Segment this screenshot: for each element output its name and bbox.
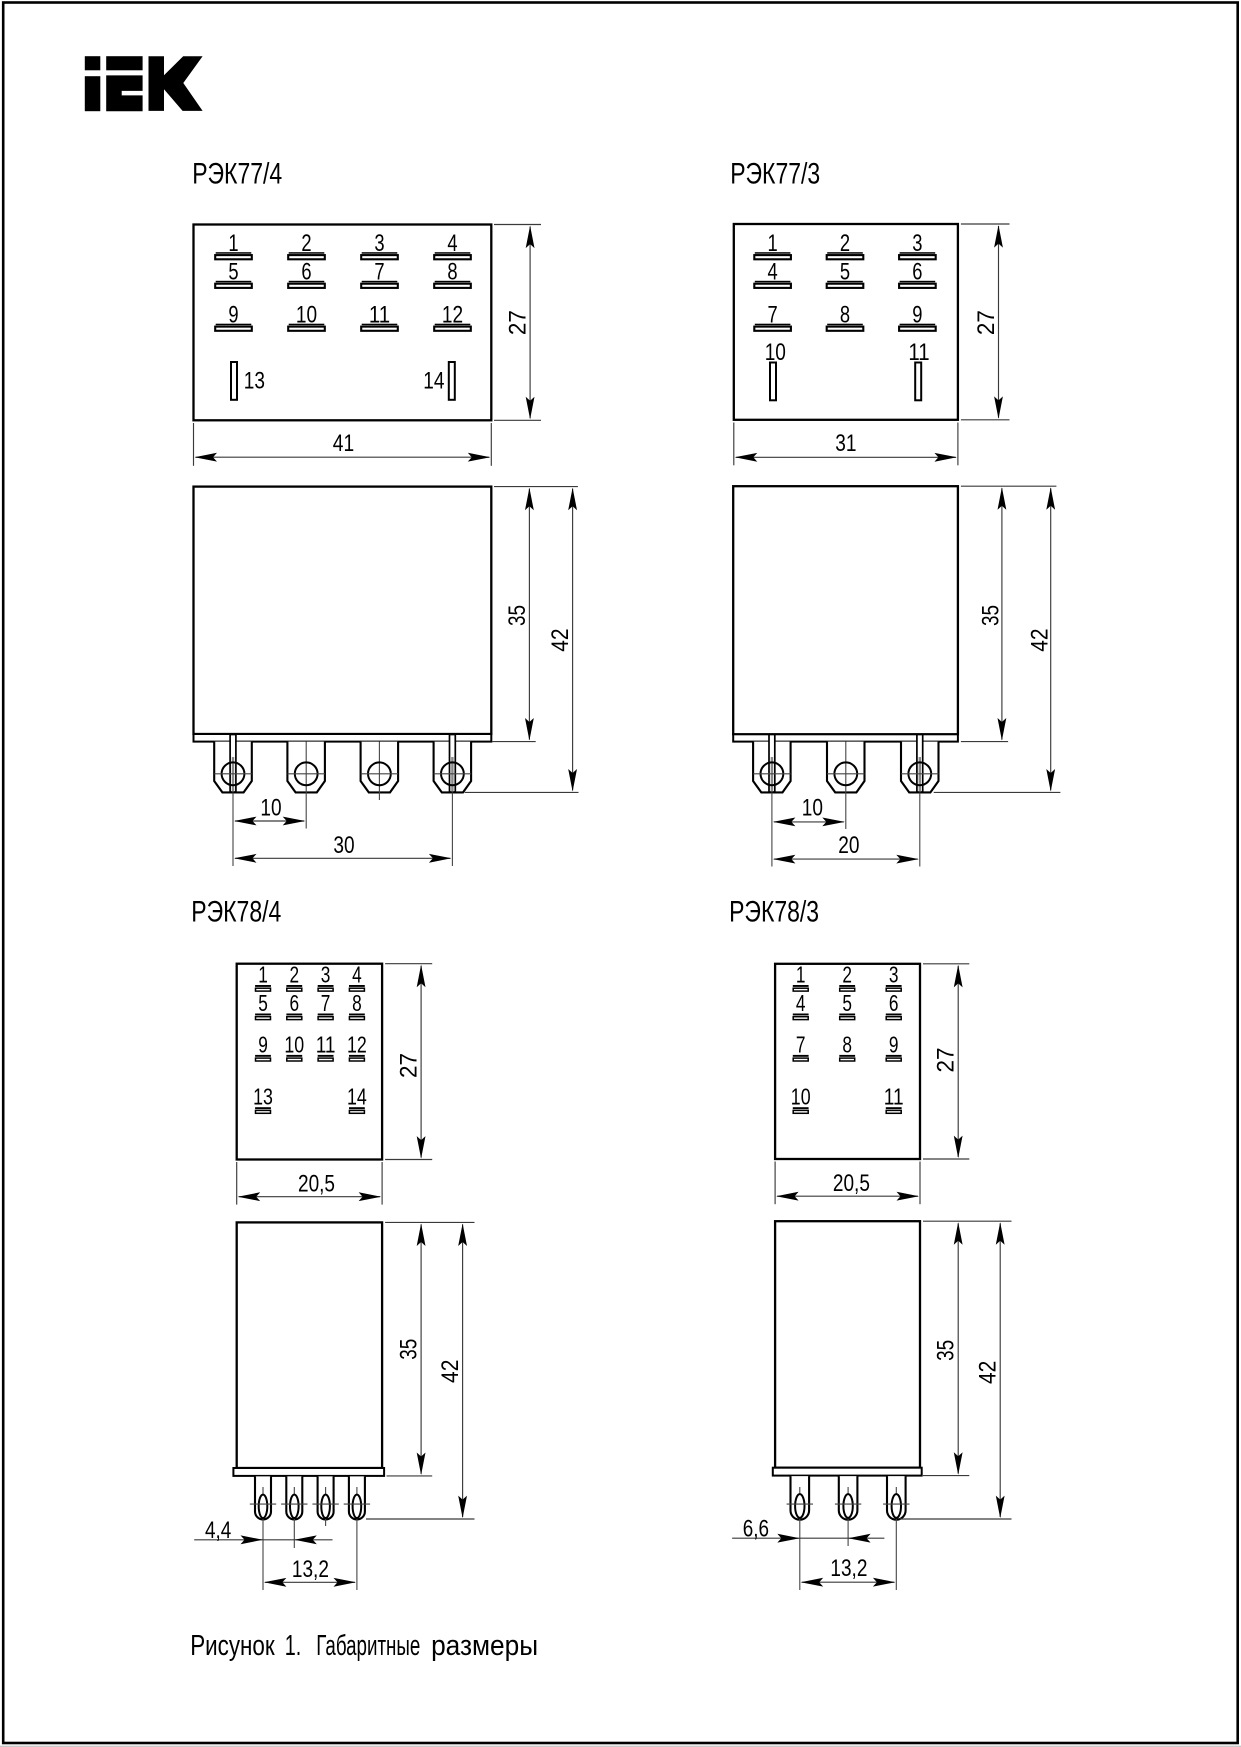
- svg-text:1: 1: [258, 961, 268, 987]
- svg-text:27: 27: [973, 310, 1000, 335]
- svg-text:3: 3: [321, 961, 331, 987]
- svg-text:41: 41: [333, 430, 354, 457]
- svg-text:2: 2: [290, 961, 300, 987]
- svg-text:12: 12: [347, 1031, 367, 1057]
- svg-text:13,2: 13,2: [292, 1556, 329, 1583]
- svg-text:5: 5: [842, 990, 852, 1016]
- svg-text:1: 1: [796, 961, 806, 987]
- svg-text:13,2: 13,2: [830, 1555, 867, 1582]
- svg-text:5: 5: [258, 990, 268, 1016]
- svg-text:27: 27: [933, 1048, 960, 1073]
- svg-text:9: 9: [889, 1031, 899, 1057]
- svg-text:20: 20: [838, 832, 859, 859]
- svg-text:31: 31: [835, 430, 856, 457]
- svg-text:35: 35: [933, 1340, 960, 1361]
- svg-text:размеры: размеры: [431, 1630, 538, 1662]
- svg-text:14: 14: [347, 1084, 367, 1110]
- svg-text:42: 42: [547, 628, 574, 651]
- svg-text:35: 35: [396, 1339, 423, 1360]
- svg-text:4: 4: [796, 990, 806, 1016]
- svg-text:7: 7: [796, 1031, 806, 1057]
- svg-text:8: 8: [842, 1031, 852, 1057]
- svg-text:2: 2: [842, 961, 852, 987]
- svg-text:6: 6: [290, 990, 300, 1016]
- svg-text:13: 13: [244, 368, 265, 395]
- svg-text:10: 10: [802, 795, 823, 822]
- svg-text:Рисунок: Рисунок: [190, 1630, 275, 1662]
- svg-text:РЭК77/4: РЭК77/4: [192, 158, 282, 191]
- svg-text:10: 10: [791, 1084, 811, 1110]
- svg-text:14: 14: [423, 368, 444, 395]
- svg-text:35: 35: [978, 605, 1005, 626]
- svg-text:27: 27: [396, 1053, 423, 1078]
- svg-text:РЭК78/3: РЭК78/3: [729, 896, 819, 929]
- svg-text:8: 8: [352, 990, 362, 1016]
- svg-text:10: 10: [260, 795, 281, 822]
- svg-text:6: 6: [889, 990, 899, 1016]
- svg-text:9: 9: [258, 1031, 268, 1057]
- svg-text:3: 3: [889, 961, 899, 987]
- svg-text:30: 30: [333, 832, 354, 859]
- svg-text:20,5: 20,5: [833, 1170, 870, 1197]
- svg-text:11: 11: [316, 1031, 336, 1057]
- svg-text:1.: 1.: [285, 1630, 302, 1662]
- svg-text:РЭК78/4: РЭК78/4: [191, 896, 281, 929]
- svg-text:20,5: 20,5: [298, 1171, 335, 1198]
- svg-text:10: 10: [284, 1031, 304, 1057]
- svg-text:7: 7: [321, 990, 331, 1016]
- svg-text:4: 4: [352, 961, 362, 987]
- svg-text:РЭК77/3: РЭК77/3: [730, 158, 820, 191]
- svg-text:42: 42: [975, 1361, 1002, 1384]
- svg-text:11: 11: [884, 1084, 904, 1110]
- svg-text:42: 42: [437, 1360, 464, 1383]
- svg-text:35: 35: [504, 605, 531, 626]
- svg-text:Габаритные: Габаритные: [316, 1630, 420, 1662]
- svg-text:6,6: 6,6: [743, 1515, 769, 1542]
- svg-text:27: 27: [504, 310, 531, 335]
- svg-text:13: 13: [253, 1084, 273, 1110]
- svg-text:4,4: 4,4: [205, 1517, 231, 1544]
- svg-text:42: 42: [1026, 628, 1053, 651]
